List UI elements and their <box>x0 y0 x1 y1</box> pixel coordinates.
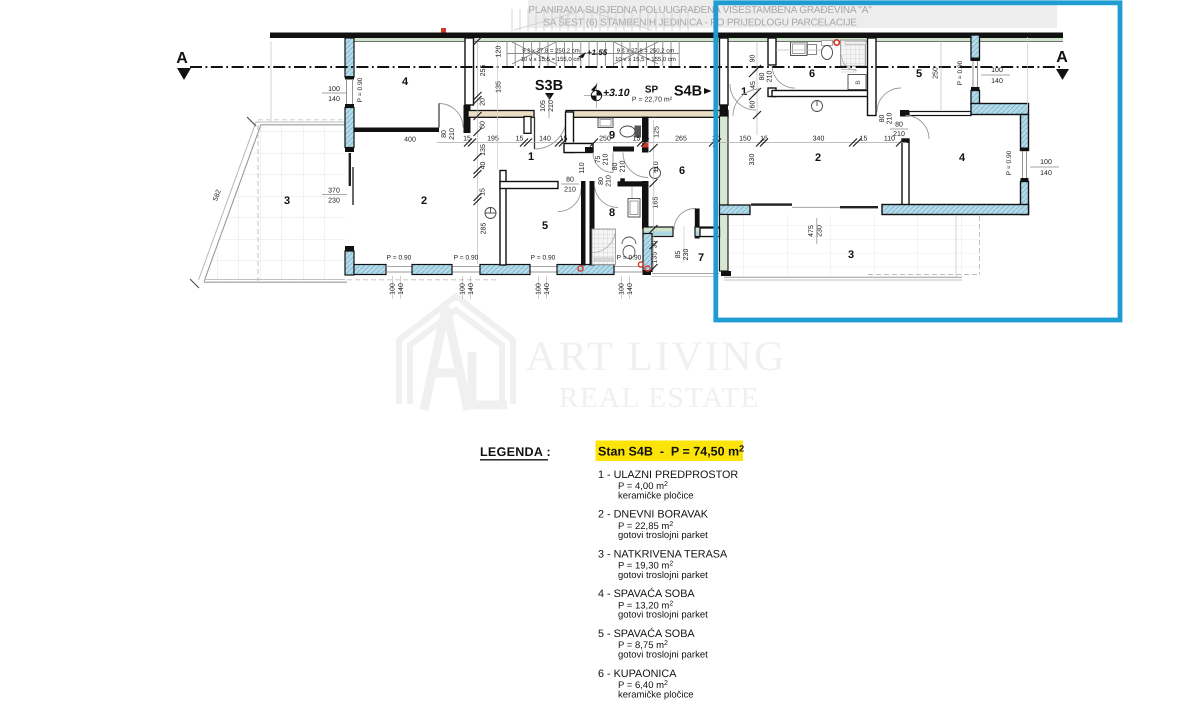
svg-text:P = 0.90: P = 0.90 <box>454 255 479 262</box>
svg-text:100: 100 <box>390 283 397 295</box>
svg-text:5 - SPAVAĆA SOBA: 5 - SPAVAĆA SOBA <box>598 627 695 640</box>
svg-text:9 š x 27,8 = 250,2 cm: 9 š x 27,8 = 250,2 cm <box>617 48 675 55</box>
svg-text:40: 40 <box>480 162 487 170</box>
svg-text:210: 210 <box>564 187 576 194</box>
svg-text:100: 100 <box>619 283 626 295</box>
svg-text:100: 100 <box>460 283 467 295</box>
svg-text:120: 120 <box>496 46 503 58</box>
svg-text:400: 400 <box>404 137 416 144</box>
svg-text:10 v x 15,5 = 155,0 cm: 10 v x 15,5 = 155,0 cm <box>615 56 676 63</box>
svg-text:80: 80 <box>759 73 766 81</box>
svg-text:370: 370 <box>328 188 340 195</box>
svg-text:250: 250 <box>933 67 940 79</box>
svg-text:P = 22,70 m²: P = 22,70 m² <box>632 97 673 104</box>
svg-text:4: 4 <box>402 76 409 88</box>
svg-text:B: B <box>855 80 862 84</box>
svg-text:REAL ESTATE: REAL ESTATE <box>559 382 760 414</box>
svg-text:140: 140 <box>991 78 1003 85</box>
svg-text:S4B: S4B <box>674 84 702 100</box>
svg-text:A: A <box>176 50 188 67</box>
svg-text:150: 150 <box>739 136 751 143</box>
svg-text:100: 100 <box>328 86 340 93</box>
svg-text:2: 2 <box>815 152 821 164</box>
svg-text:60: 60 <box>750 101 757 109</box>
svg-text:90: 90 <box>750 55 757 63</box>
svg-text:140: 140 <box>398 283 405 295</box>
svg-text:255: 255 <box>480 65 487 77</box>
svg-text:9 š x 27,8 = 250,2 cm: 9 š x 27,8 = 250,2 cm <box>522 48 580 55</box>
svg-text:6: 6 <box>679 165 685 177</box>
svg-text:210: 210 <box>767 71 774 83</box>
svg-text:110: 110 <box>653 161 660 172</box>
svg-text:285: 285 <box>481 223 488 235</box>
svg-text:80: 80 <box>598 177 605 185</box>
svg-text:80: 80 <box>895 122 903 129</box>
svg-text:SP: SP <box>645 85 659 96</box>
svg-text:gotovi troslojni parket: gotovi troslojni parket <box>618 530 708 541</box>
svg-text:5: 5 <box>916 68 922 80</box>
svg-text:105: 105 <box>540 100 547 112</box>
svg-text:gotovi troslojni parket: gotovi troslojni parket <box>618 650 708 661</box>
svg-text:330: 330 <box>749 154 756 166</box>
svg-text:45: 45 <box>750 81 757 89</box>
svg-text:140: 140 <box>468 283 475 295</box>
svg-text:100: 100 <box>1040 159 1052 166</box>
svg-text:210: 210 <box>620 161 627 173</box>
svg-text:PLANIRANA SUSJEDNA POLUUGRAĐEN: PLANIRANA SUSJEDNA POLUUGRAĐENA VIŠESTAM… <box>528 4 872 16</box>
svg-text:230: 230 <box>683 249 690 261</box>
svg-text:6 - KUPAONICA: 6 - KUPAONICA <box>598 668 677 680</box>
svg-text:15: 15 <box>560 136 568 143</box>
svg-text:P = 0.90: P = 0.90 <box>957 60 964 85</box>
svg-text:80: 80 <box>879 115 886 123</box>
svg-text:80: 80 <box>566 177 574 184</box>
svg-text:3: 3 <box>848 249 854 261</box>
svg-text:P = 0.90: P = 0.90 <box>1006 150 1013 175</box>
svg-text:210: 210 <box>603 154 610 166</box>
svg-text:60: 60 <box>480 121 487 129</box>
svg-text:140: 140 <box>539 136 551 143</box>
svg-text:4 - SPAVAĆA SOBA: 4 - SPAVAĆA SOBA <box>598 587 695 600</box>
svg-text:210: 210 <box>887 113 894 125</box>
svg-text:20: 20 <box>480 98 487 106</box>
svg-text:210: 210 <box>606 175 613 187</box>
svg-text:8: 8 <box>609 207 615 219</box>
svg-text:S3B: S3B <box>535 78 563 94</box>
svg-text:15: 15 <box>516 136 524 143</box>
svg-text:250: 250 <box>599 136 611 143</box>
svg-text:P = 0.90: P = 0.90 <box>357 77 364 102</box>
svg-text:110: 110 <box>579 162 586 173</box>
svg-text:75: 75 <box>595 156 602 164</box>
svg-text:100: 100 <box>991 67 1003 74</box>
svg-text:P = 0.90: P = 0.90 <box>617 255 642 262</box>
svg-text:15: 15 <box>633 136 641 143</box>
svg-text:keramičke pločice: keramičke pločice <box>618 490 694 501</box>
svg-text:230: 230 <box>328 198 340 205</box>
svg-text:230: 230 <box>817 225 824 237</box>
svg-text:2: 2 <box>421 195 427 207</box>
svg-text:140: 140 <box>328 96 340 103</box>
svg-text:gotovi troslojni parket: gotovi troslojni parket <box>618 570 708 581</box>
svg-text:P = 0.90: P = 0.90 <box>387 255 412 262</box>
svg-text:125: 125 <box>654 126 661 138</box>
svg-text:1: 1 <box>528 151 534 163</box>
svg-text:ART LIVING: ART LIVING <box>526 334 787 380</box>
svg-text:140: 140 <box>544 283 551 295</box>
svg-text:10 v x 15,5 = 155,0 cm: 10 v x 15,5 = 155,0 cm <box>521 56 582 63</box>
svg-text:80: 80 <box>612 163 619 171</box>
svg-text:210: 210 <box>893 131 905 138</box>
svg-text:135: 135 <box>496 81 503 93</box>
svg-text:7: 7 <box>698 252 704 264</box>
svg-text:LEGENDA :: LEGENDA : <box>480 445 551 459</box>
svg-text:210: 210 <box>449 128 456 140</box>
svg-text:+1.55: +1.55 <box>587 48 608 57</box>
svg-text:100: 100 <box>536 283 543 295</box>
svg-text:3: 3 <box>284 195 290 207</box>
svg-text:140: 140 <box>627 283 634 295</box>
svg-text:135: 135 <box>652 252 659 264</box>
svg-text:5: 5 <box>542 220 548 232</box>
svg-text:gotovi troslojni parket: gotovi troslojni parket <box>618 610 708 621</box>
svg-text:1 - ULAZNI PREDPROSTOR: 1 - ULAZNI PREDPROSTOR <box>598 469 738 481</box>
svg-text:15: 15 <box>463 136 471 143</box>
svg-text:340: 340 <box>813 136 825 143</box>
svg-text:475: 475 <box>808 225 815 237</box>
svg-text:6: 6 <box>809 68 815 80</box>
svg-text:265: 265 <box>675 136 687 143</box>
svg-text:80: 80 <box>441 130 448 138</box>
svg-text:15: 15 <box>860 136 868 143</box>
svg-text:keramičke pločice: keramičke pločice <box>618 689 694 700</box>
svg-text:4: 4 <box>959 152 966 164</box>
svg-text:Stan S4B - P = 74,50 m2: Stan S4B - P = 74,50 m2 <box>598 444 744 459</box>
svg-text:SA ŠEST (6) STAMBENIH JEDINICA: SA ŠEST (6) STAMBENIH JEDINICA - PO PRIJ… <box>543 17 857 29</box>
svg-text:3 - NATKRIVENA TERASA: 3 - NATKRIVENA TERASA <box>598 548 728 560</box>
svg-text:2 - DNEVNI BORAVAK: 2 - DNEVNI BORAVAK <box>598 509 709 521</box>
svg-text:+3.10: +3.10 <box>603 87 630 99</box>
svg-text:140: 140 <box>1040 170 1052 177</box>
svg-text:15: 15 <box>760 136 768 143</box>
svg-text:A: A <box>1056 49 1068 66</box>
svg-text:85: 85 <box>675 251 682 259</box>
svg-text:P = 0.90: P = 0.90 <box>531 255 556 262</box>
